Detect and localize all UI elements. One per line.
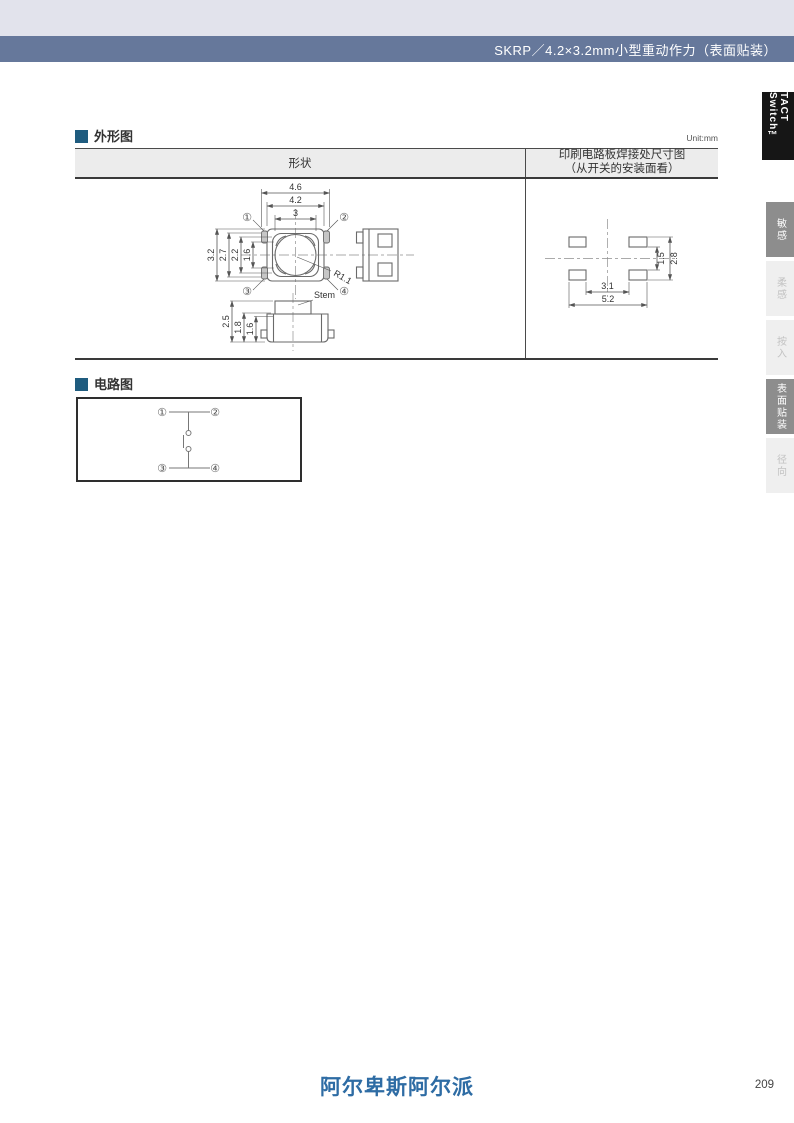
dim-label: 2.8	[669, 252, 679, 265]
solder-pad	[569, 237, 586, 247]
dim-label: 4.6	[289, 182, 302, 192]
outline-table-header: 形状 印刷电路板焊接处尺寸图 （从开关的安装面看）	[75, 148, 718, 179]
category-tab-push-in: 按入	[766, 320, 794, 375]
front-terminal	[328, 330, 334, 338]
front-terminal	[261, 330, 267, 338]
stem-label: Stem	[314, 290, 335, 300]
column-header-pcb-line1: 印刷电路板焊接处尺寸图	[559, 149, 686, 163]
dim-label: 1.8	[233, 321, 243, 334]
category-tab-label: 柔感	[773, 277, 788, 301]
category-tab-soft: 柔感	[766, 261, 794, 316]
circuit-section-title: 电路图	[94, 378, 133, 391]
category-tab-label: 径向	[773, 454, 788, 478]
terminal-callout-3: ③	[242, 286, 252, 298]
terminal-callout-1: ①	[242, 212, 252, 224]
pcb-pad-layout-drawing: 3.1 5.2 1.5 2.8	[525, 179, 718, 358]
category-tab-label: 按入	[773, 336, 788, 360]
section-bullet-icon	[75, 130, 88, 143]
category-tab-sensitive: 敏感	[766, 202, 794, 257]
outline-section-title: 外形图	[94, 130, 133, 143]
side-terminal-window	[378, 234, 392, 247]
dim-label: 2.7	[218, 249, 228, 262]
dim-label: 4.2	[289, 195, 302, 205]
column-header-pcb-line2: （从开关的安装面看）	[565, 163, 680, 177]
side-terminal	[357, 267, 364, 278]
dim-label: 2.2	[230, 249, 240, 262]
solder-pad	[629, 237, 647, 247]
category-tab-label: 表面贴装	[773, 383, 788, 431]
circuit-terminal-4: ④	[210, 463, 220, 475]
terminal-2	[324, 231, 330, 243]
outline-section-head: 外形图 Unit:mm	[75, 130, 718, 143]
category-tab-surface-mount: 表面贴装	[766, 379, 794, 434]
circuit-terminal-1: ①	[157, 407, 167, 419]
dim-label: 3.2	[206, 249, 216, 262]
datasheet-page: SKRP／4.2×3.2mm小型重动作力（表面贴装） TACT Switch™ …	[0, 0, 794, 1123]
circuit-terminal-2: ②	[210, 407, 220, 419]
alps-alpine-logo: 阿尔卑斯阿尔派	[0, 1071, 794, 1101]
series-index-tact-switch: TACT Switch™	[762, 92, 794, 160]
series-index-label: TACT Switch™	[767, 92, 789, 160]
circuit-terminal-3: ③	[157, 463, 167, 475]
radius-label: R1.1	[332, 268, 353, 286]
page-number: 209	[755, 1079, 774, 1091]
dim-label: 2.5	[221, 315, 231, 328]
page-header: SKRP／4.2×3.2mm小型重动作力（表面贴装）	[0, 36, 794, 62]
solder-pad	[629, 270, 647, 280]
contact-point	[186, 431, 191, 436]
page-title: SKRP／4.2×3.2mm小型重动作力（表面贴装）	[494, 40, 777, 59]
dim-label: 3	[293, 208, 298, 218]
dim-label: 1.6	[245, 323, 255, 336]
side-terminal-window	[378, 263, 392, 276]
circuit-section-head: 电路图	[75, 378, 133, 391]
dim-label: 1.5	[656, 252, 666, 265]
terminal-4	[324, 267, 330, 279]
category-tab-radial: 径向	[766, 438, 794, 493]
contact-point	[186, 447, 191, 452]
terminal-callout-2: ②	[339, 212, 349, 224]
unit-label: Unit:mm	[686, 133, 718, 143]
switch-body-front-view	[267, 314, 328, 342]
switch-outline-drawing: 4.6 4.2 3 3.2 2.7	[75, 179, 525, 358]
side-terminal	[357, 232, 364, 243]
top-band	[0, 0, 794, 36]
column-header-shape: 形状	[75, 149, 525, 177]
dim-label: 3.1	[601, 281, 614, 291]
solder-pad	[569, 270, 586, 280]
dim-label: 1.6	[242, 249, 252, 262]
outline-table-body: 4.6 4.2 3 3.2 2.7	[75, 179, 718, 360]
circuit-diagram: ① ② ③ ④	[78, 399, 296, 476]
column-header-pcb: 印刷电路板焊接处尺寸图 （从开关的安装面看）	[525, 149, 718, 177]
section-bullet-icon	[75, 378, 88, 391]
dim-label: 5.2	[602, 294, 615, 304]
category-tab-label: 敏感	[773, 218, 788, 242]
terminal-callout-4: ④	[339, 286, 349, 298]
outline-table: 形状 印刷电路板焊接处尺寸图 （从开关的安装面看）	[75, 148, 718, 360]
circuit-diagram-box: ① ② ③ ④	[76, 397, 302, 482]
